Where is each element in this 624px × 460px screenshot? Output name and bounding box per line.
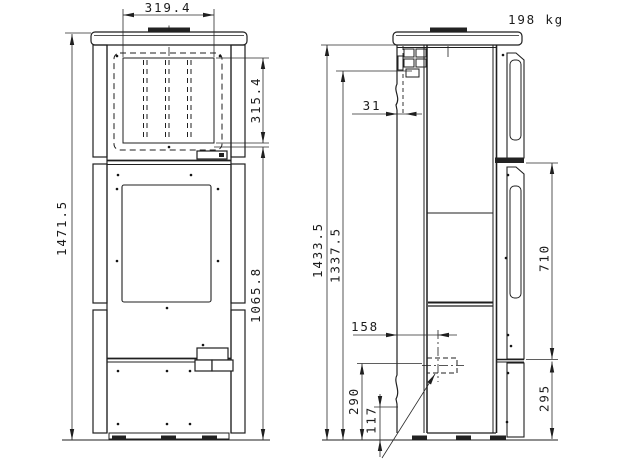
dim-glass-bottom-label: 1065.8 [248, 267, 263, 323]
dim-bottom-detail-label: 117 [364, 406, 379, 434]
dim-inlet-height-label: 290 [346, 387, 361, 415]
front-handle [195, 348, 233, 371]
side-flue-collar [398, 49, 426, 77]
front-dimensions: 319.4 315.4 1471.5 1065.8 [54, 0, 269, 440]
dim-glass-height-label: 315.4 [248, 77, 263, 124]
front-right-column [231, 45, 245, 157]
side-cladding-panels [495, 53, 524, 437]
side-top-plate [393, 32, 522, 45]
dim-overall-height-label: 1471.5 [54, 200, 69, 256]
front-view [91, 26, 247, 441]
side-air-inlet [422, 330, 464, 382]
dim-glass-width-label: 319.4 [145, 0, 192, 15]
dim-height-1433-label: 1433.5 [310, 222, 325, 278]
dim-height-1337-label: 1337.5 [328, 227, 343, 283]
side-top-cap [430, 28, 467, 33]
dim-inlet-offset-label: 158 [351, 319, 379, 334]
front-left-column [93, 45, 107, 157]
side-view [393, 28, 524, 441]
dim-side-panel-label: 710 [537, 244, 552, 272]
front-window-inner-lines [144, 60, 192, 141]
drawing-canvas: 319.4 315.4 1471.5 1065.8 [0, 0, 624, 460]
dim-flue-offset-label: 31 [363, 98, 382, 113]
side-back-wall [396, 45, 398, 433]
front-window-frame [114, 53, 222, 150]
front-top-plate [91, 32, 247, 45]
technical-drawing: 319.4 315.4 1471.5 1065.8 [0, 0, 624, 460]
front-door-panel [122, 185, 211, 302]
dim-lower-panel-label: 295 [537, 384, 552, 412]
weight-label: 198 kg [508, 12, 564, 27]
